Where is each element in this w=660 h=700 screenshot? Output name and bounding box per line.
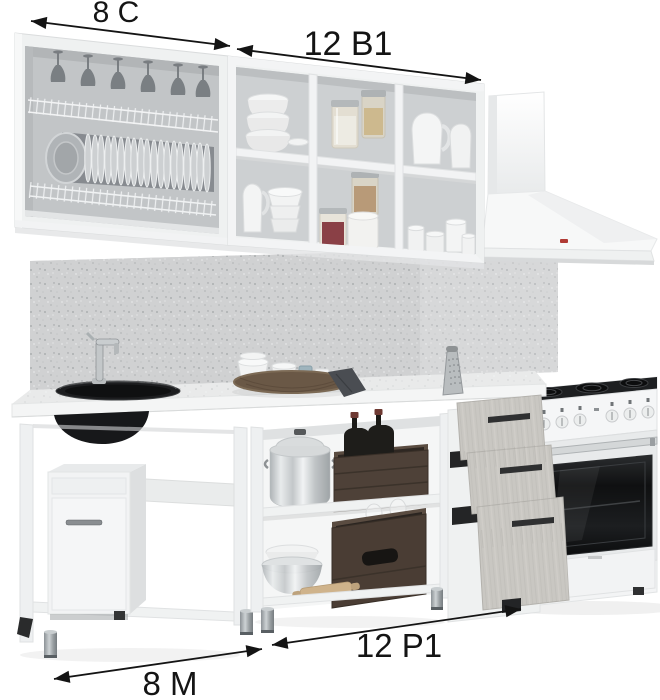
work-base-cabinet-12p1 bbox=[251, 409, 453, 633]
drawer-3 bbox=[477, 497, 569, 610]
metal-leg bbox=[261, 607, 274, 633]
kitchen-product-image: 8 C 12 B1 8 M 12 P1 bbox=[0, 0, 660, 700]
label-12p1: 12 P1 bbox=[356, 627, 442, 664]
label-8c: 8 C bbox=[93, 0, 140, 29]
label-12b1: 12 B1 bbox=[304, 25, 393, 63]
jug-and-ramekins bbox=[243, 184, 302, 232]
metal-leg bbox=[44, 630, 57, 658]
hood-logo bbox=[560, 239, 568, 243]
upper-cabinet-8c bbox=[15, 33, 228, 245]
stove-foot bbox=[633, 587, 644, 595]
stove-brand-mark bbox=[588, 556, 602, 559]
label-8m: 8 M bbox=[142, 665, 197, 700]
cabinet-door bbox=[52, 498, 126, 610]
range-hood bbox=[482, 92, 657, 265]
metal-leg bbox=[240, 609, 253, 635]
upper-shelf-unit-12b1 bbox=[228, 56, 484, 263]
metal-leg bbox=[431, 587, 443, 610]
sink bbox=[56, 381, 180, 400]
small-utility-cabinet bbox=[48, 464, 146, 620]
door-handle bbox=[66, 520, 102, 525]
sink-base-cabinet-8m bbox=[17, 411, 253, 662]
